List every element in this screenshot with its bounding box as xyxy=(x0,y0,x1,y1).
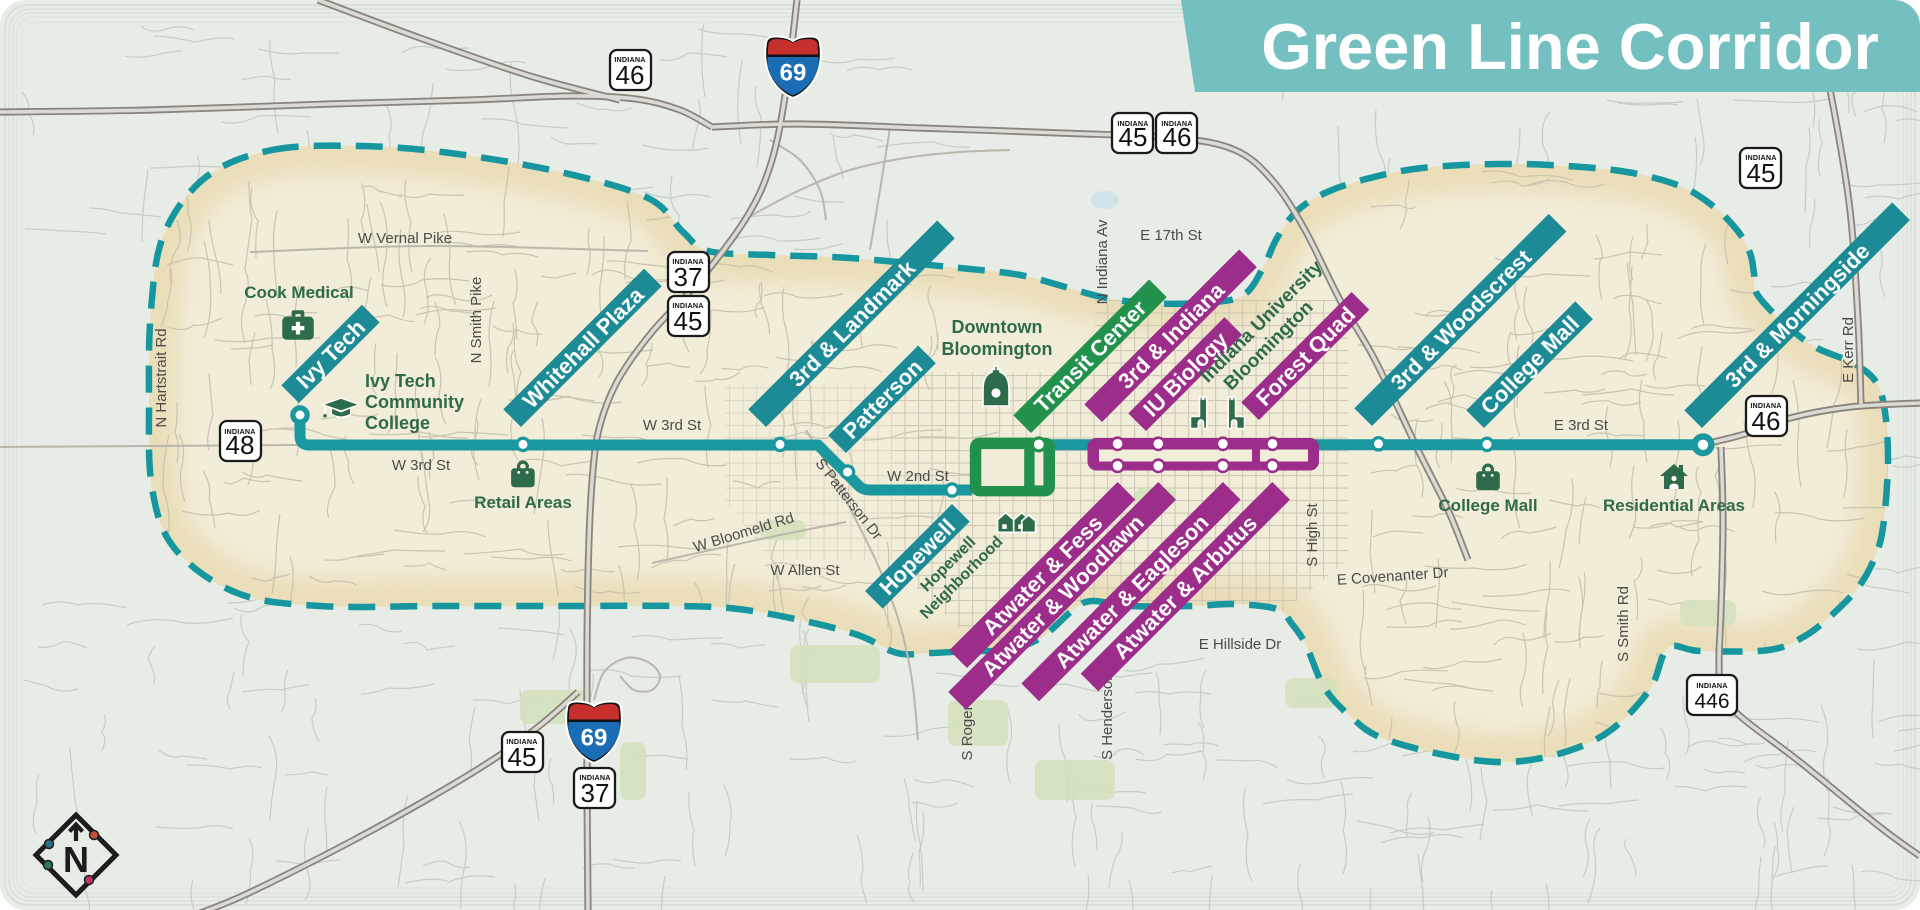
svg-text:69: 69 xyxy=(581,725,608,752)
svg-text:E 17th St: E 17th St xyxy=(1140,227,1203,244)
svg-text:45: 45 xyxy=(508,742,537,772)
svg-text:N Hartstrait Rd: N Hartstrait Rd xyxy=(153,328,170,427)
svg-text:E 3rd St: E 3rd St xyxy=(1554,417,1609,434)
svg-text:INDIANA: INDIANA xyxy=(1696,681,1727,690)
svg-text:W 2nd St: W 2nd St xyxy=(887,468,950,485)
svg-text:46: 46 xyxy=(1752,406,1781,436)
svg-text:W 3rd St: W 3rd St xyxy=(392,457,451,474)
svg-text:E Hillside Dr: E Hillside Dr xyxy=(1199,636,1282,653)
svg-text:37: 37 xyxy=(581,778,610,808)
svg-text:45: 45 xyxy=(674,306,703,336)
svg-text:S Smith Rd: S Smith Rd xyxy=(1615,586,1632,662)
svg-text:Retail Areas: Retail Areas xyxy=(474,493,572,512)
svg-text:Cook Medical: Cook Medical xyxy=(244,283,354,302)
svg-text:48: 48 xyxy=(226,430,255,460)
svg-text:N Smith Pike: N Smith Pike xyxy=(468,277,485,364)
svg-text:46: 46 xyxy=(1163,122,1192,152)
svg-text:N Indiana Av: N Indiana Av xyxy=(1094,219,1111,304)
svg-text:69: 69 xyxy=(780,60,807,87)
svg-text:E Kerr Rd: E Kerr Rd xyxy=(1840,317,1857,383)
svg-text:Residential Areas: Residential Areas xyxy=(1603,496,1745,515)
svg-text:College Mall: College Mall xyxy=(1438,496,1537,515)
svg-text:45: 45 xyxy=(1747,158,1776,188)
svg-text:45: 45 xyxy=(1119,122,1148,152)
svg-text:W Allen St: W Allen St xyxy=(770,562,840,579)
svg-text:N: N xyxy=(63,839,89,880)
svg-text:S High St: S High St xyxy=(1304,502,1321,566)
svg-text:46: 46 xyxy=(616,60,645,90)
svg-text:Green Line Corridor: Green Line Corridor xyxy=(1261,10,1879,83)
svg-text:W Vernal Pike: W Vernal Pike xyxy=(358,230,452,247)
svg-text:W 3rd St: W 3rd St xyxy=(643,417,702,434)
svg-text:37: 37 xyxy=(674,262,703,292)
svg-text:446: 446 xyxy=(1694,690,1729,713)
